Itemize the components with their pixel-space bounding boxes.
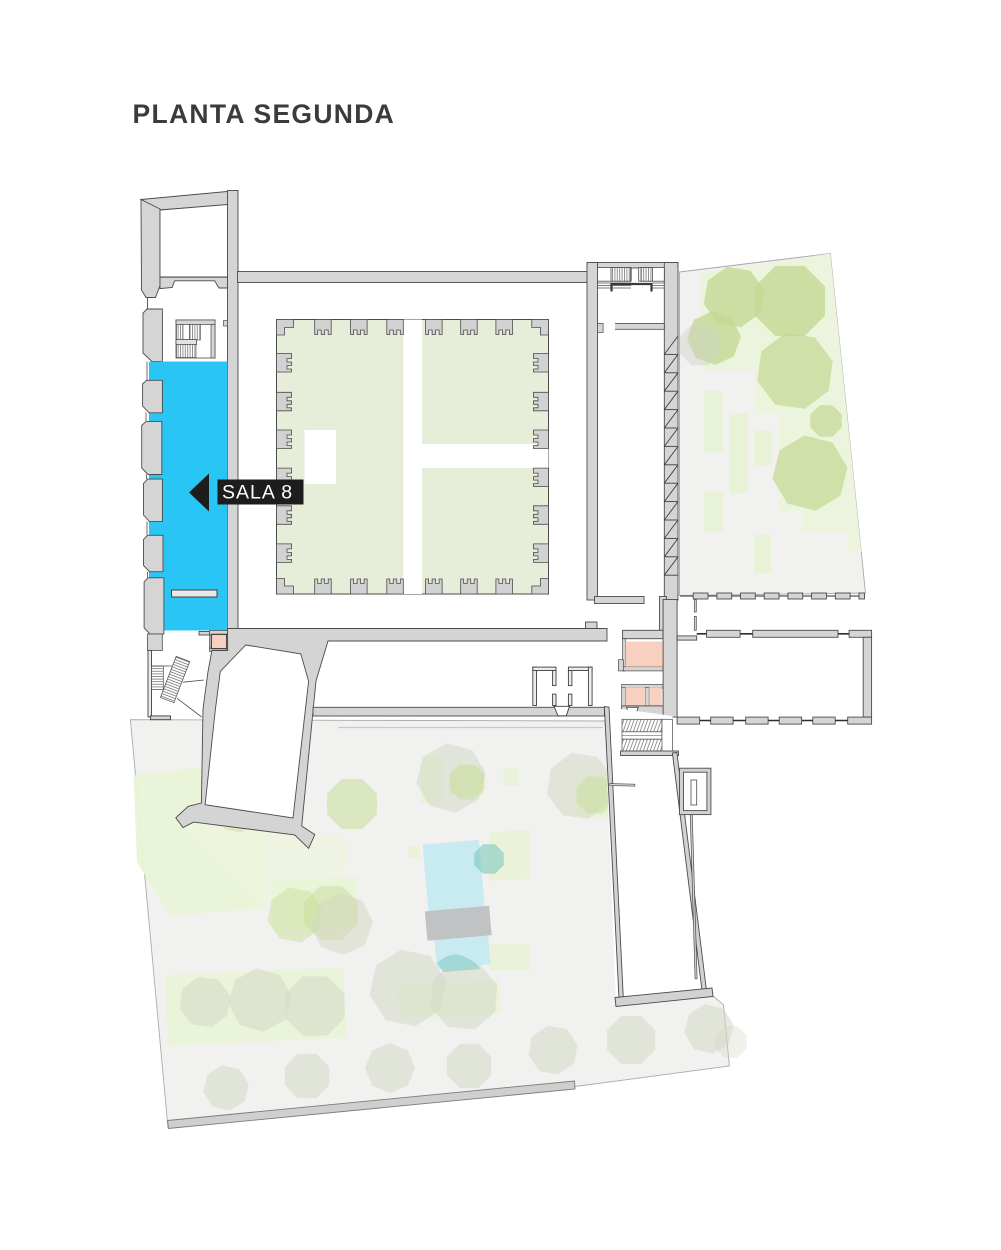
svg-text:SALA 8: SALA 8 (222, 482, 293, 504)
svg-text:PLANTA SEGUNDA: PLANTA SEGUNDA (133, 99, 396, 129)
